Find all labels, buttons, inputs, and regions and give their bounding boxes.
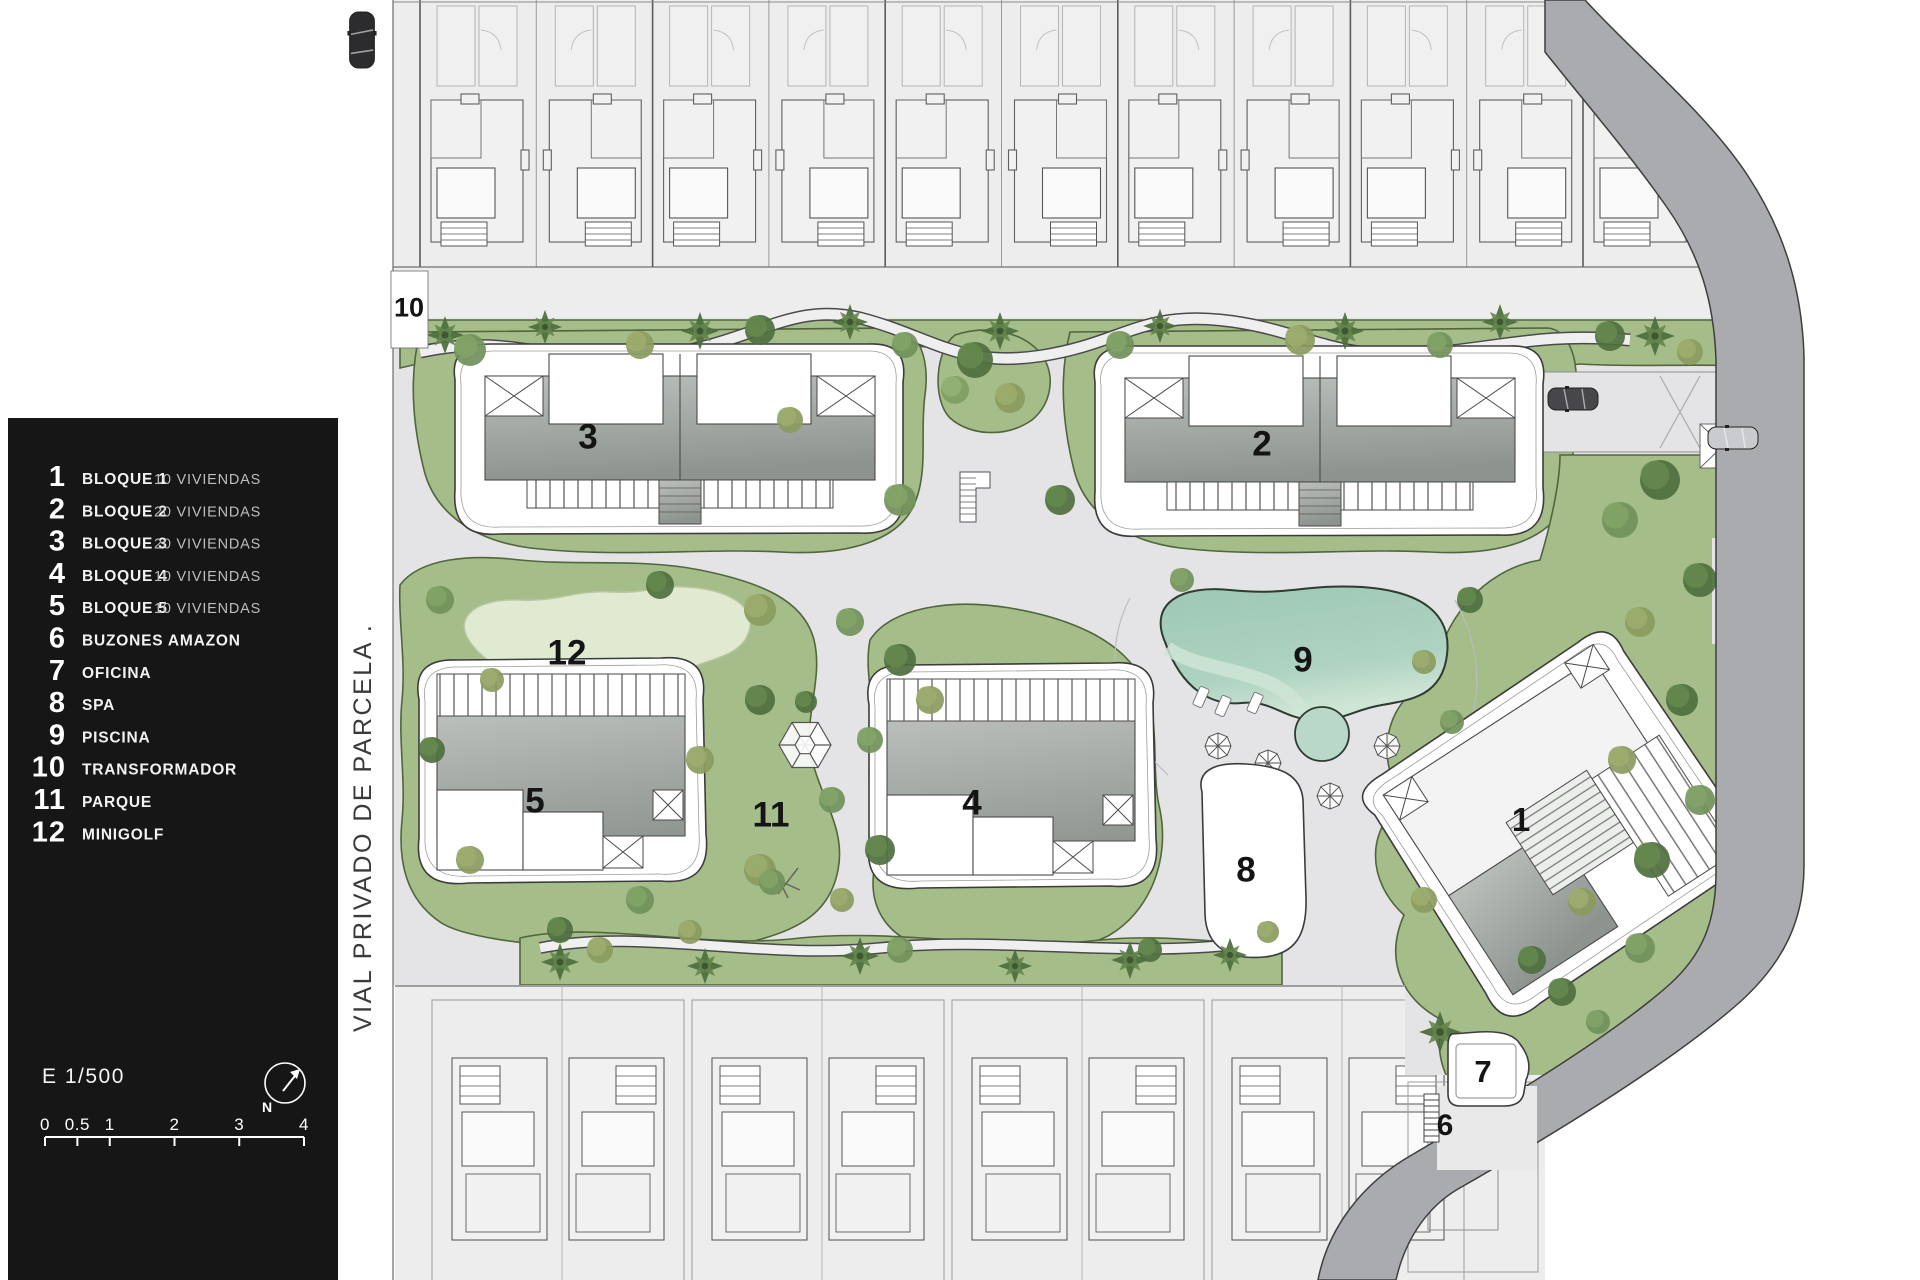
building-bloque-3 [454,344,904,534]
site-plan-screenshot: 103212951141876 1BLOQUE 110 VIVIENDAS2BL… [0,0,1920,1280]
area-marker-2: 2 [1252,425,1271,464]
legend-item-num: 3 [49,526,66,558]
area-marker-12: 12 [548,634,587,673]
scale-tick-label: 3 [234,1115,244,1134]
car-icon [1548,386,1598,412]
legend-item-label: MINIGOLF [82,826,164,843]
north-label: N [262,1099,272,1115]
legend-panel: 1BLOQUE 110 VIVIENDAS2BLOQUE 220 VIVIEND… [8,418,338,1280]
area-marker-3: 3 [578,418,597,457]
legend-item-num: 5 [49,590,66,622]
legend-item-detail: 20 VIVIENDAS [154,537,261,553]
building-bloque-2 [1094,346,1544,536]
legend-item-num: 10 [32,752,66,784]
site-plan-canvas: 103212951141876 1BLOQUE 110 VIVIENDAS2BL… [0,0,1920,1280]
area-marker-5: 5 [525,782,544,821]
legend-item-num: 6 [49,623,66,655]
scale-tick-label: 1 [105,1115,115,1134]
legend-item-num: 11 [33,784,66,816]
area-marker-8: 8 [1236,851,1255,890]
area-marker-9: 9 [1293,641,1312,680]
oficina-building [1437,1032,1537,1170]
legend-item-label: BUZONES AMAZON [82,633,241,650]
car-icon [347,12,376,68]
legend-item-num: 4 [49,558,66,590]
area-marker-4: 4 [962,784,982,823]
street-label: VIAL PRIVADO DE PARCELA . [349,623,377,1032]
umbrella-icon [1205,733,1231,759]
area-marker-1: 1 [1512,801,1530,838]
legend-item-num: 8 [49,687,66,719]
legend-item-label: SPA [82,697,115,714]
legend-item-detail: 20 VIVIENDAS [154,504,261,520]
legend-item-label: TRANSFORMADOR [82,762,237,779]
legend-item-detail: 10 VIVIENDAS [154,601,261,617]
scale-tick-label: 0.5 [65,1115,90,1134]
area-marker-11: 11 [753,796,790,835]
legend-item-num: 2 [49,493,66,525]
area-marker-10: 10 [394,293,424,323]
building-bloque-4 [868,663,1157,889]
legend-item-detail: 10 VIVIENDAS [154,472,261,488]
scale-text: E 1/500 [42,1065,125,1088]
scale-tick-label: 0 [40,1115,50,1134]
legend-item-label: PARQUE [82,794,152,811]
legend-item-num: 1 [49,461,66,493]
area-marker-6: 6 [1437,1109,1454,1142]
legend-item-num: 9 [49,719,66,751]
legend-item-detail: 10 VIVIENDAS [154,569,261,585]
legend-item-label: PISCINA [82,729,150,746]
scale-tick-label: 4 [299,1115,309,1134]
car-icon [1708,425,1758,451]
legend-item-label: OFICINA [82,665,151,682]
scale-tick-label: 2 [170,1115,180,1134]
area-marker-7: 7 [1474,1054,1491,1089]
umbrella-icon [1317,783,1343,809]
umbrella-icon [1374,733,1400,759]
legend-item-num: 12 [32,816,66,848]
legend-item-num: 7 [49,655,66,687]
